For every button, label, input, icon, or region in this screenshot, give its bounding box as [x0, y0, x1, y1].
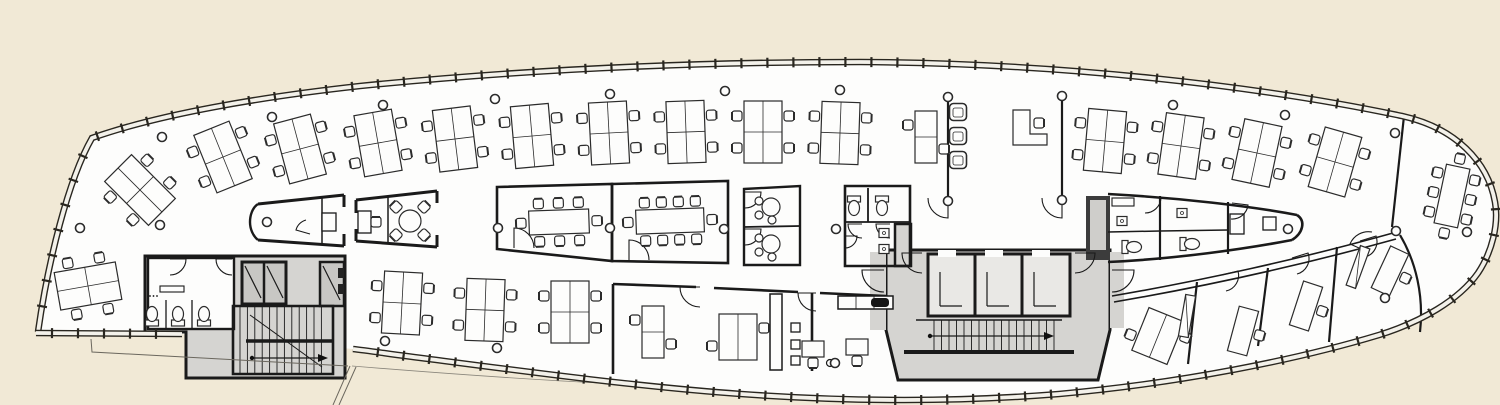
- floor-plan: [0, 0, 1500, 405]
- chair-group: [371, 217, 381, 227]
- floor-plan-svg: [0, 0, 1500, 405]
- lounge-group: [950, 104, 967, 169]
- plan-drawing: [0, 0, 1500, 405]
